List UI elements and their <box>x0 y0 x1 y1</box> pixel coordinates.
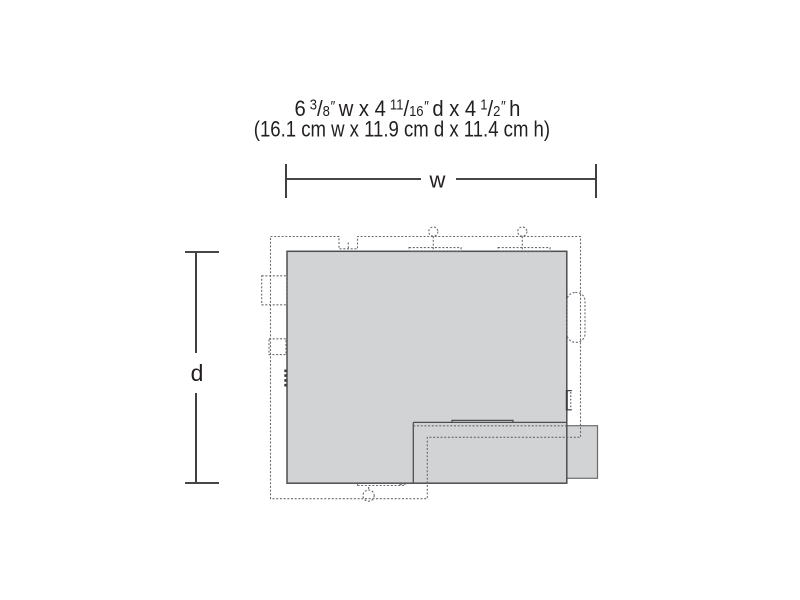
svg-text:w: w <box>429 168 446 193</box>
svg-text:(16.1 cm w x 11.9 cm d x 11.4: (16.1 cm w x 11.9 cm d x 11.4 cm h) <box>254 117 550 142</box>
svg-text:d: d <box>191 360 204 386</box>
